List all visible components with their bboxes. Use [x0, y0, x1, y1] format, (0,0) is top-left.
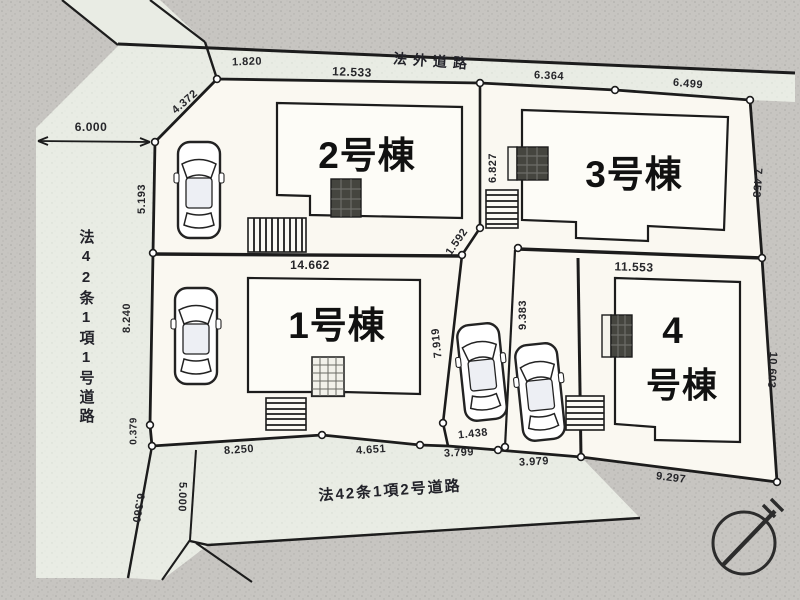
car-icon-1 — [174, 142, 224, 238]
site-plan-page: 1.820 12.533 法外道路 6.364 6.499 6.000 4.37… — [0, 0, 800, 600]
stairs-icon-3 — [266, 398, 306, 430]
building-3-outline — [522, 110, 728, 241]
car-icon-2 — [171, 288, 221, 384]
porch-icon-lot3 — [508, 147, 548, 180]
stairs-icon-4 — [566, 396, 604, 430]
porch-icon-lot1 — [312, 357, 344, 396]
site-plan-drawing — [0, 0, 800, 600]
porch-icon-lot2 — [331, 179, 361, 217]
stairs-icon-2 — [486, 190, 518, 228]
porch-icon-lot4 — [602, 315, 632, 357]
stairs-icon-1 — [248, 218, 306, 252]
building-4-outline — [615, 278, 740, 442]
